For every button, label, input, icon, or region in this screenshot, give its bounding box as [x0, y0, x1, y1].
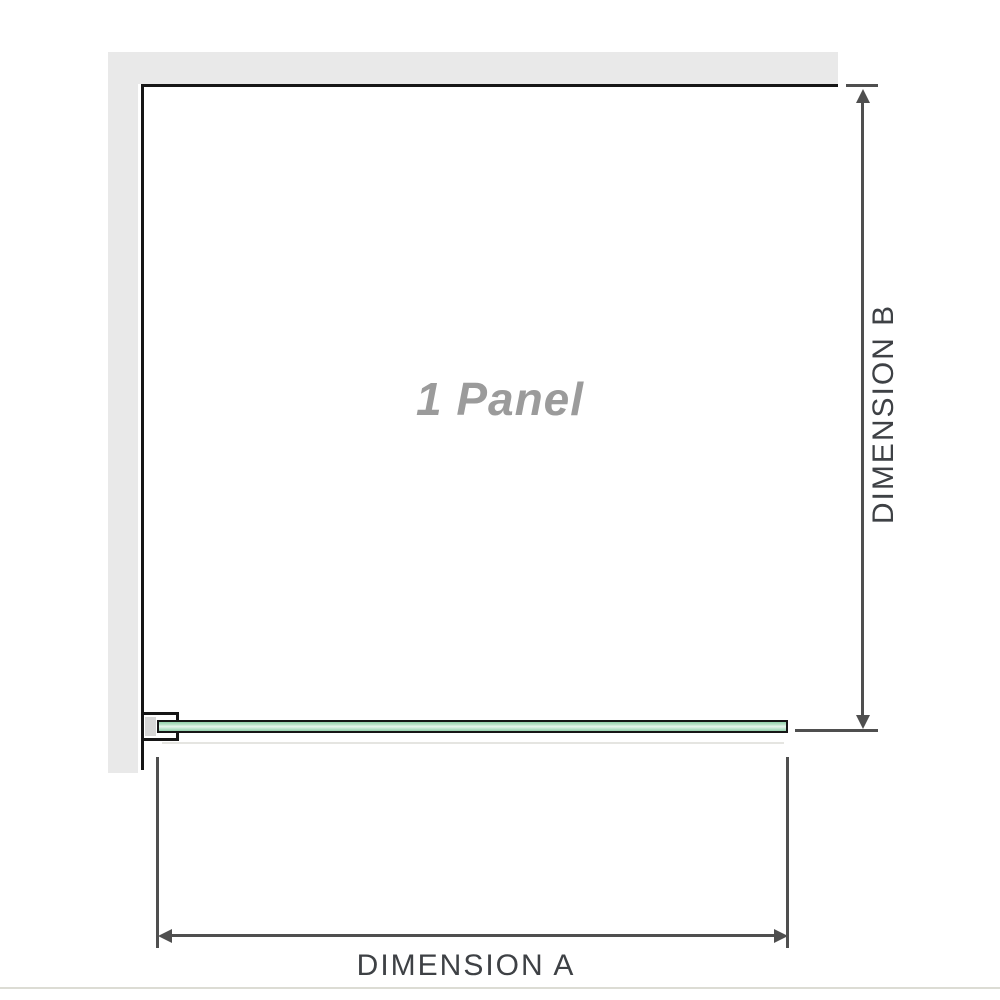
dimension-a-right-extension	[786, 757, 789, 948]
page-bottom-rule	[0, 987, 1000, 989]
dimension-a-label: DIMENSION A	[357, 949, 576, 983]
arrow-left-icon	[158, 929, 172, 943]
dimension-b-bottom-extension	[795, 729, 878, 732]
panel-count-label: 1 Panel	[416, 372, 584, 426]
wall-left	[108, 52, 138, 773]
dimension-diagram: 1 Panel DIMENSION B DIMENSION A	[0, 0, 1000, 1000]
glass-panel	[157, 720, 788, 733]
dimension-a-left-extension	[156, 757, 159, 948]
wall-bracket-pad	[145, 717, 156, 736]
dimension-b-line	[861, 99, 864, 719]
dimension-b-top-tick	[846, 84, 878, 87]
glass-panel-shadow	[162, 742, 784, 744]
panel-outline-left	[141, 84, 144, 770]
arrow-down-icon	[856, 715, 870, 729]
wall-top	[108, 52, 838, 84]
panel-outline-top	[141, 84, 838, 87]
arrow-right-icon	[774, 929, 788, 943]
arrow-up-icon	[856, 89, 870, 103]
dimension-b-label: DIMENSION B	[867, 304, 901, 524]
dimension-a-line	[168, 934, 778, 937]
